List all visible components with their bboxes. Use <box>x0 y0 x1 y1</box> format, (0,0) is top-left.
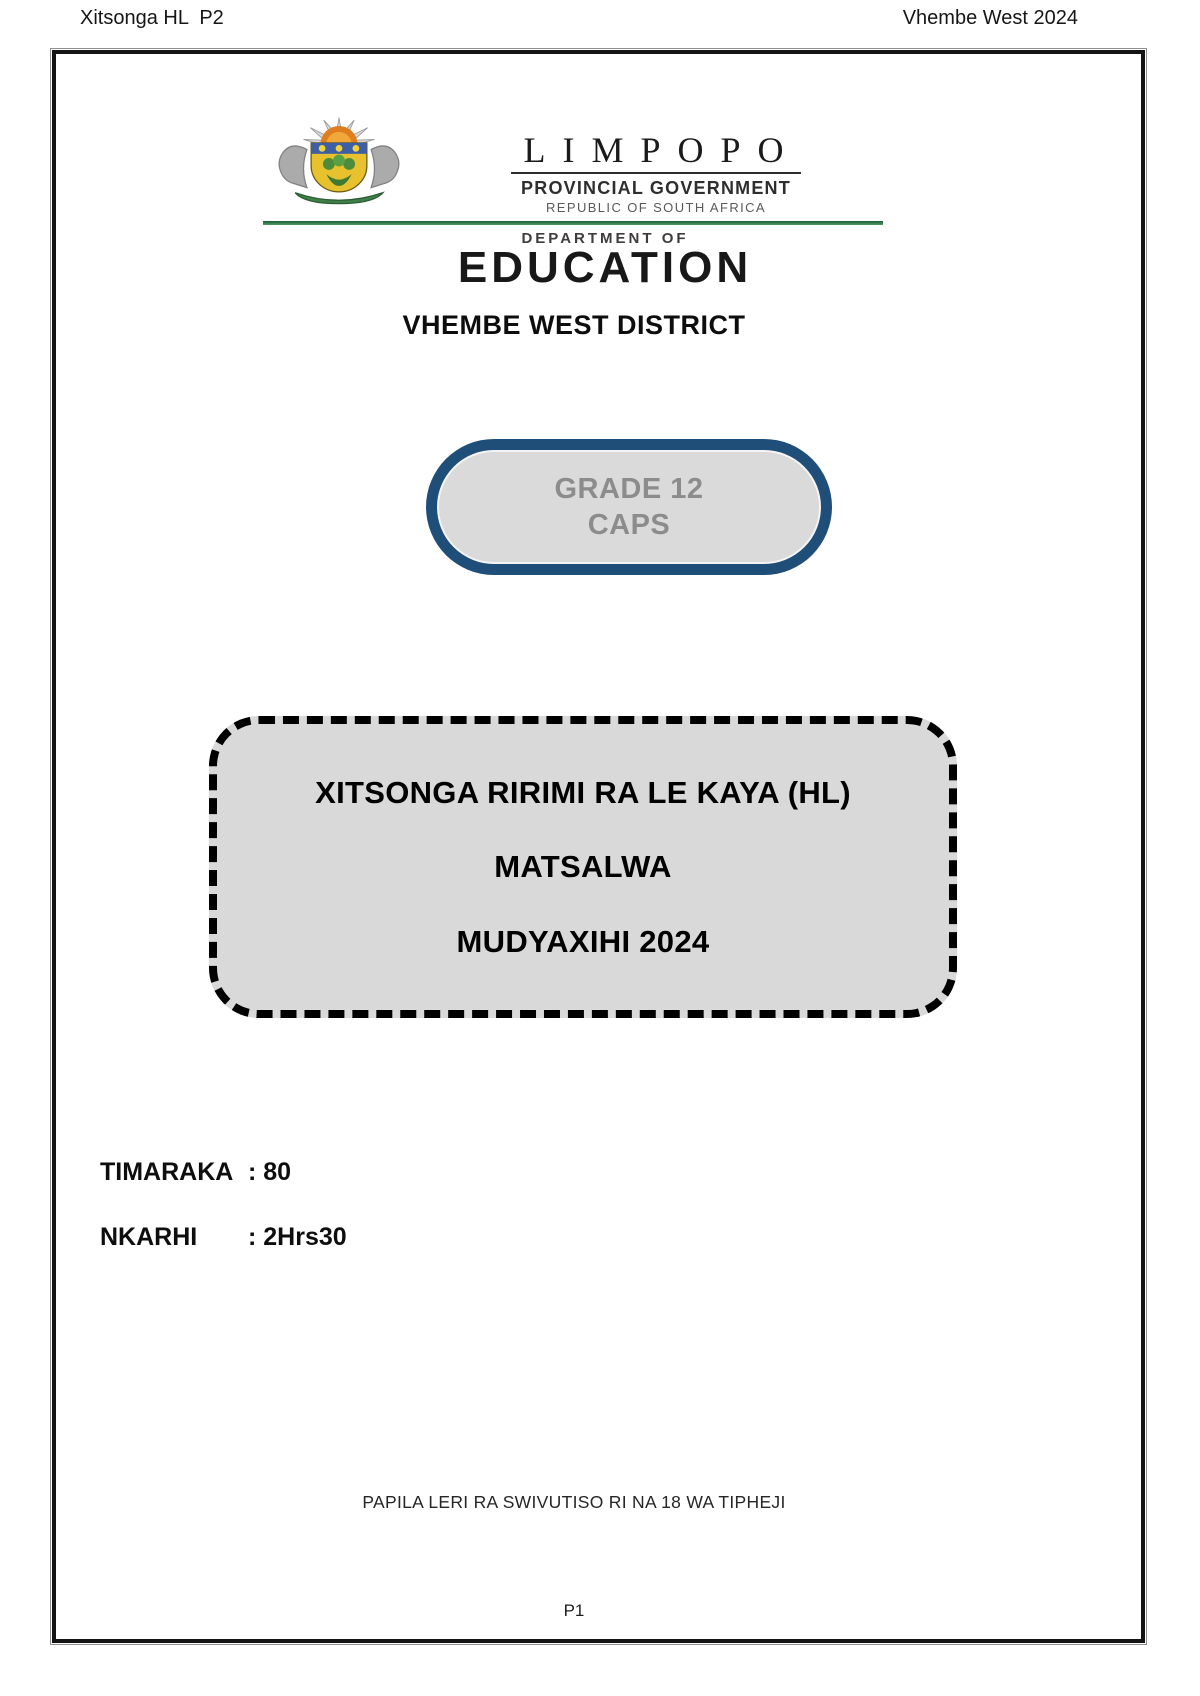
subject-title: XITSONGA RIRIMI RA LE KAYA (HL) <box>315 775 851 811</box>
time-value: : 2Hrs30 <box>248 1223 347 1252</box>
time-label: NKARHI <box>100 1223 248 1252</box>
left-lion-icon <box>279 146 307 188</box>
grade-label: GRADE 12 <box>554 473 703 506</box>
grade-caps-badge: GRADE 12 CAPS <box>426 439 832 575</box>
education-label: EDUCATION <box>327 247 883 289</box>
provincial-logo: LIMPOPO PROVINCIAL GOVERNMENT REPUBLIC O… <box>263 112 883 289</box>
republic-label: REPUBLIC OF SOUTH AFRICA <box>429 200 883 215</box>
green-divider <box>263 221 883 225</box>
right-lion-icon <box>371 146 399 188</box>
green-base-icon <box>295 193 383 204</box>
marks-label: TIMARAKA <box>100 1158 248 1187</box>
marks-value: : 80 <box>248 1158 291 1187</box>
page-number: P1 <box>52 1601 1096 1621</box>
provincial-government-label: PROVINCIAL GOVERNMENT <box>429 178 883 199</box>
limpopo-coat-of-arms-icon <box>263 112 415 215</box>
limpopo-wordmark: LIMPOPO <box>511 132 800 174</box>
caps-label: CAPS <box>588 509 671 542</box>
district-title: VHEMBE WEST DISTRICT <box>52 310 1096 341</box>
time-row: NKARHI : 2Hrs30 <box>100 1223 347 1252</box>
session-title: MUDYAXIHI 2024 <box>457 924 710 960</box>
page-header-right: Vhembe West 2024 <box>903 7 1078 30</box>
page-count-note: PAPILA LERI RA SWIVUTISO RI NA 18 WA TIP… <box>52 1492 1096 1513</box>
page-header-left: Xitsonga HL P2 <box>80 7 224 30</box>
exam-details: TIMARAKA : 80 NKARHI : 2Hrs30 <box>100 1158 347 1288</box>
subject-panel: XITSONGA RIRIMI RA LE KAYA (HL) MATSALWA… <box>209 716 957 1018</box>
marks-row: TIMARAKA : 80 <box>100 1158 347 1187</box>
paper-title: MATSALWA <box>494 849 671 885</box>
